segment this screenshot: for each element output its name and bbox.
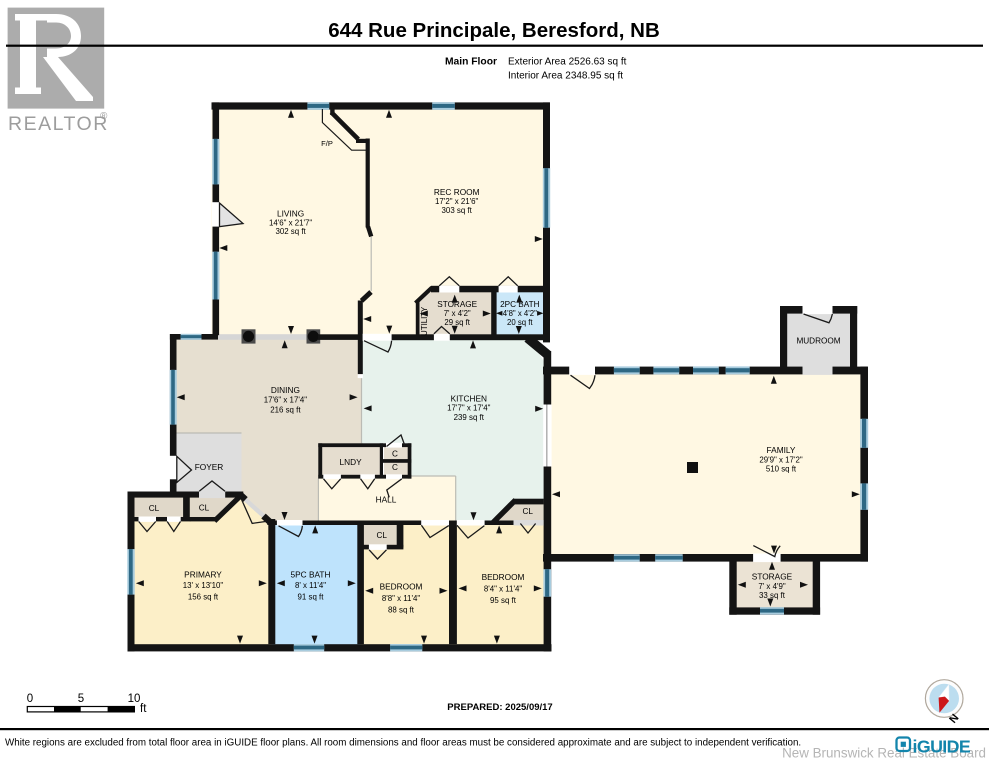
svg-text:ft: ft <box>140 703 147 715</box>
svg-text:644 Rue Principale, Beresford,: 644 Rue Principale, Beresford, NB <box>328 19 660 42</box>
svg-text:Exterior Area 2526.63 sq ft: Exterior Area 2526.63 sq ft <box>508 57 627 68</box>
svg-text:Main Floor: Main Floor <box>445 57 497 68</box>
svg-text:156 sq ft: 156 sq ft <box>188 593 219 602</box>
svg-text:7' x 4'2": 7' x 4'2" <box>444 309 471 318</box>
svg-text:BEDROOM: BEDROOM <box>380 582 423 592</box>
svg-text:95 sq ft: 95 sq ft <box>490 596 517 605</box>
svg-text:510 sq ft: 510 sq ft <box>766 465 797 474</box>
svg-text:91 sq ft: 91 sq ft <box>298 593 325 602</box>
svg-text:8'4" x 11'4": 8'4" x 11'4" <box>484 585 522 594</box>
svg-text:FOYER: FOYER <box>195 462 224 472</box>
svg-text:17'2" x 21'6": 17'2" x 21'6" <box>435 197 478 206</box>
svg-text:88 sq ft: 88 sq ft <box>388 606 415 615</box>
svg-text:29'9" x 17'2": 29'9" x 17'2" <box>759 456 802 465</box>
svg-text:4'8" x 4'2": 4'8" x 4'2" <box>503 309 537 318</box>
svg-text:CL: CL <box>522 507 533 516</box>
svg-text:20 sq ft: 20 sq ft <box>507 318 533 327</box>
svg-text:5: 5 <box>78 693 84 705</box>
svg-text:MUDROOM: MUDROOM <box>796 337 840 346</box>
svg-text:8'8" x 11'4": 8'8" x 11'4" <box>382 594 420 603</box>
svg-text:STORAGE: STORAGE <box>752 572 793 582</box>
svg-text:0: 0 <box>27 693 33 705</box>
svg-text:C: C <box>392 449 398 458</box>
svg-text:14'6" x 21'7": 14'6" x 21'7" <box>269 218 312 227</box>
svg-text:LNDY: LNDY <box>340 457 363 467</box>
svg-text:C: C <box>392 463 398 472</box>
svg-text:KITCHEN: KITCHEN <box>451 393 487 403</box>
svg-text:HALL: HALL <box>376 495 397 505</box>
svg-text:STORAGE: STORAGE <box>437 300 477 309</box>
svg-text:CL: CL <box>376 531 387 540</box>
svg-text:®: ® <box>100 111 108 122</box>
svg-text:17'7" x 17'4": 17'7" x 17'4" <box>447 404 490 413</box>
svg-text:13' x 13'10": 13' x 13'10" <box>183 581 224 590</box>
svg-text:303 sq ft: 303 sq ft <box>442 206 473 215</box>
svg-text:REALTOR: REALTOR <box>8 113 109 135</box>
svg-text:PRIMARY: PRIMARY <box>184 570 222 580</box>
svg-text:F/P: F/P <box>321 139 333 148</box>
svg-text:CL: CL <box>149 504 160 513</box>
svg-text:8' x 11'4": 8' x 11'4" <box>295 581 326 590</box>
svg-text:PREPARED: 2025/09/17: PREPARED: 2025/09/17 <box>447 702 552 713</box>
svg-text:5PC BATH: 5PC BATH <box>291 570 331 580</box>
svg-text:REC ROOM: REC ROOM <box>434 187 480 197</box>
svg-text:CL: CL <box>199 503 210 512</box>
svg-text:216 sq ft: 216 sq ft <box>270 405 301 414</box>
svg-text:White regions are excluded fro: White regions are excluded from total fl… <box>5 738 801 749</box>
svg-text:239 sq ft: 239 sq ft <box>454 413 485 422</box>
svg-text:LIVING: LIVING <box>277 208 304 218</box>
svg-text:17'6" x 17'4": 17'6" x 17'4" <box>264 396 307 405</box>
svg-text:10: 10 <box>128 693 141 705</box>
svg-text:BEDROOM: BEDROOM <box>482 572 525 582</box>
svg-text:DINING: DINING <box>271 385 300 395</box>
svg-text:7' x 4'9": 7' x 4'9" <box>758 582 786 591</box>
svg-text:29 sq ft: 29 sq ft <box>444 318 470 327</box>
svg-text:UTILITY: UTILITY <box>420 306 429 336</box>
svg-text:iGUIDE: iGUIDE <box>913 737 971 757</box>
svg-text:33 sq ft: 33 sq ft <box>759 591 786 600</box>
svg-text:FAMILY: FAMILY <box>767 445 796 455</box>
svg-text:302 sq ft: 302 sq ft <box>275 227 306 236</box>
svg-text:Interior Area 2348.95 sq ft: Interior Area 2348.95 sq ft <box>508 70 623 81</box>
